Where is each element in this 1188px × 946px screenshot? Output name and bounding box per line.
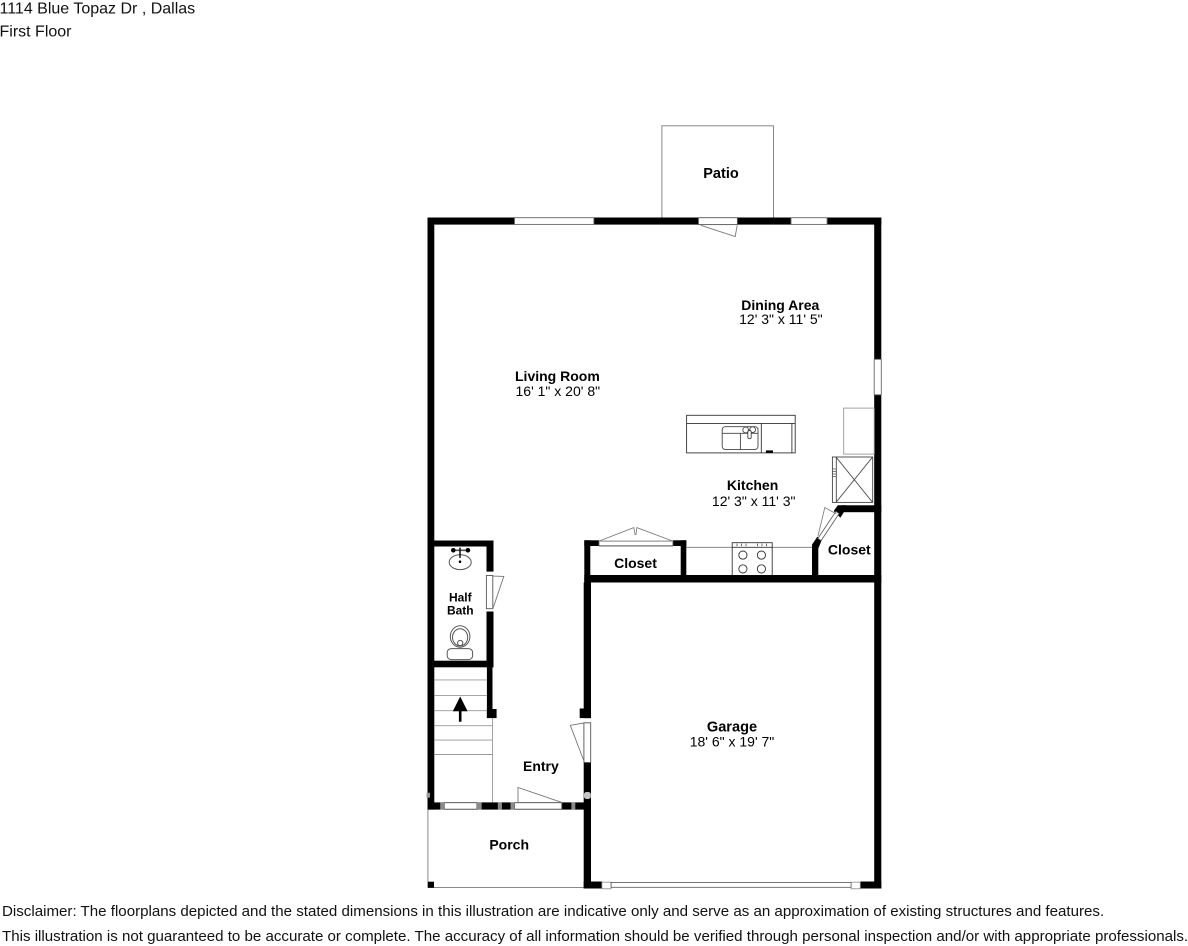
svg-text:Bath: Bath: [447, 604, 474, 618]
svg-text:This illustration is not guara: This illustration is not guaranteed to b…: [2, 928, 1188, 945]
svg-text:Closet: Closet: [614, 555, 657, 571]
svg-text:Entry: Entry: [523, 758, 559, 774]
svg-text:Kitchen: Kitchen: [727, 477, 778, 493]
svg-text:Patio: Patio: [703, 166, 739, 182]
svg-text:Living Room: Living Room: [515, 368, 600, 384]
svg-text:12' 3" x 11' 3": 12' 3" x 11' 3": [712, 493, 796, 509]
svg-text:Closet: Closet: [828, 541, 871, 557]
svg-text:16' 1" x 20' 8": 16' 1" x 20' 8": [516, 383, 601, 399]
svg-text:Half: Half: [449, 591, 473, 605]
svg-text:First Floor: First Floor: [0, 23, 72, 40]
svg-text:1114 Blue Topaz Dr , Dallas: 1114 Blue Topaz Dr , Dallas: [0, 0, 195, 17]
svg-text:Disclaimer: The floorplans dep: Disclaimer: The floorplans depicted and …: [2, 903, 1104, 920]
svg-text:18' 6" x 19' 7": 18' 6" x 19' 7": [690, 733, 775, 749]
svg-text:Porch: Porch: [489, 837, 529, 853]
svg-text:12' 3" x 11' 5": 12' 3" x 11' 5": [739, 311, 823, 327]
